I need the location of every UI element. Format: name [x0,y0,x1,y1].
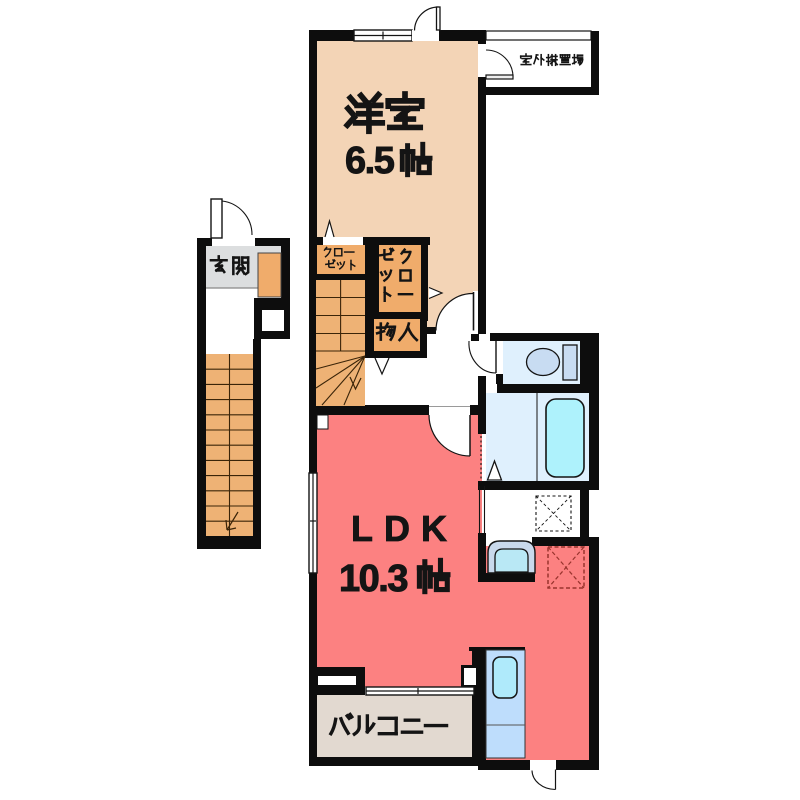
svg-text:LDK: LDK [351,508,458,549]
svg-text:6.5: 6.5 [345,140,395,182]
svg-text:10.3: 10.3 [339,558,407,600]
